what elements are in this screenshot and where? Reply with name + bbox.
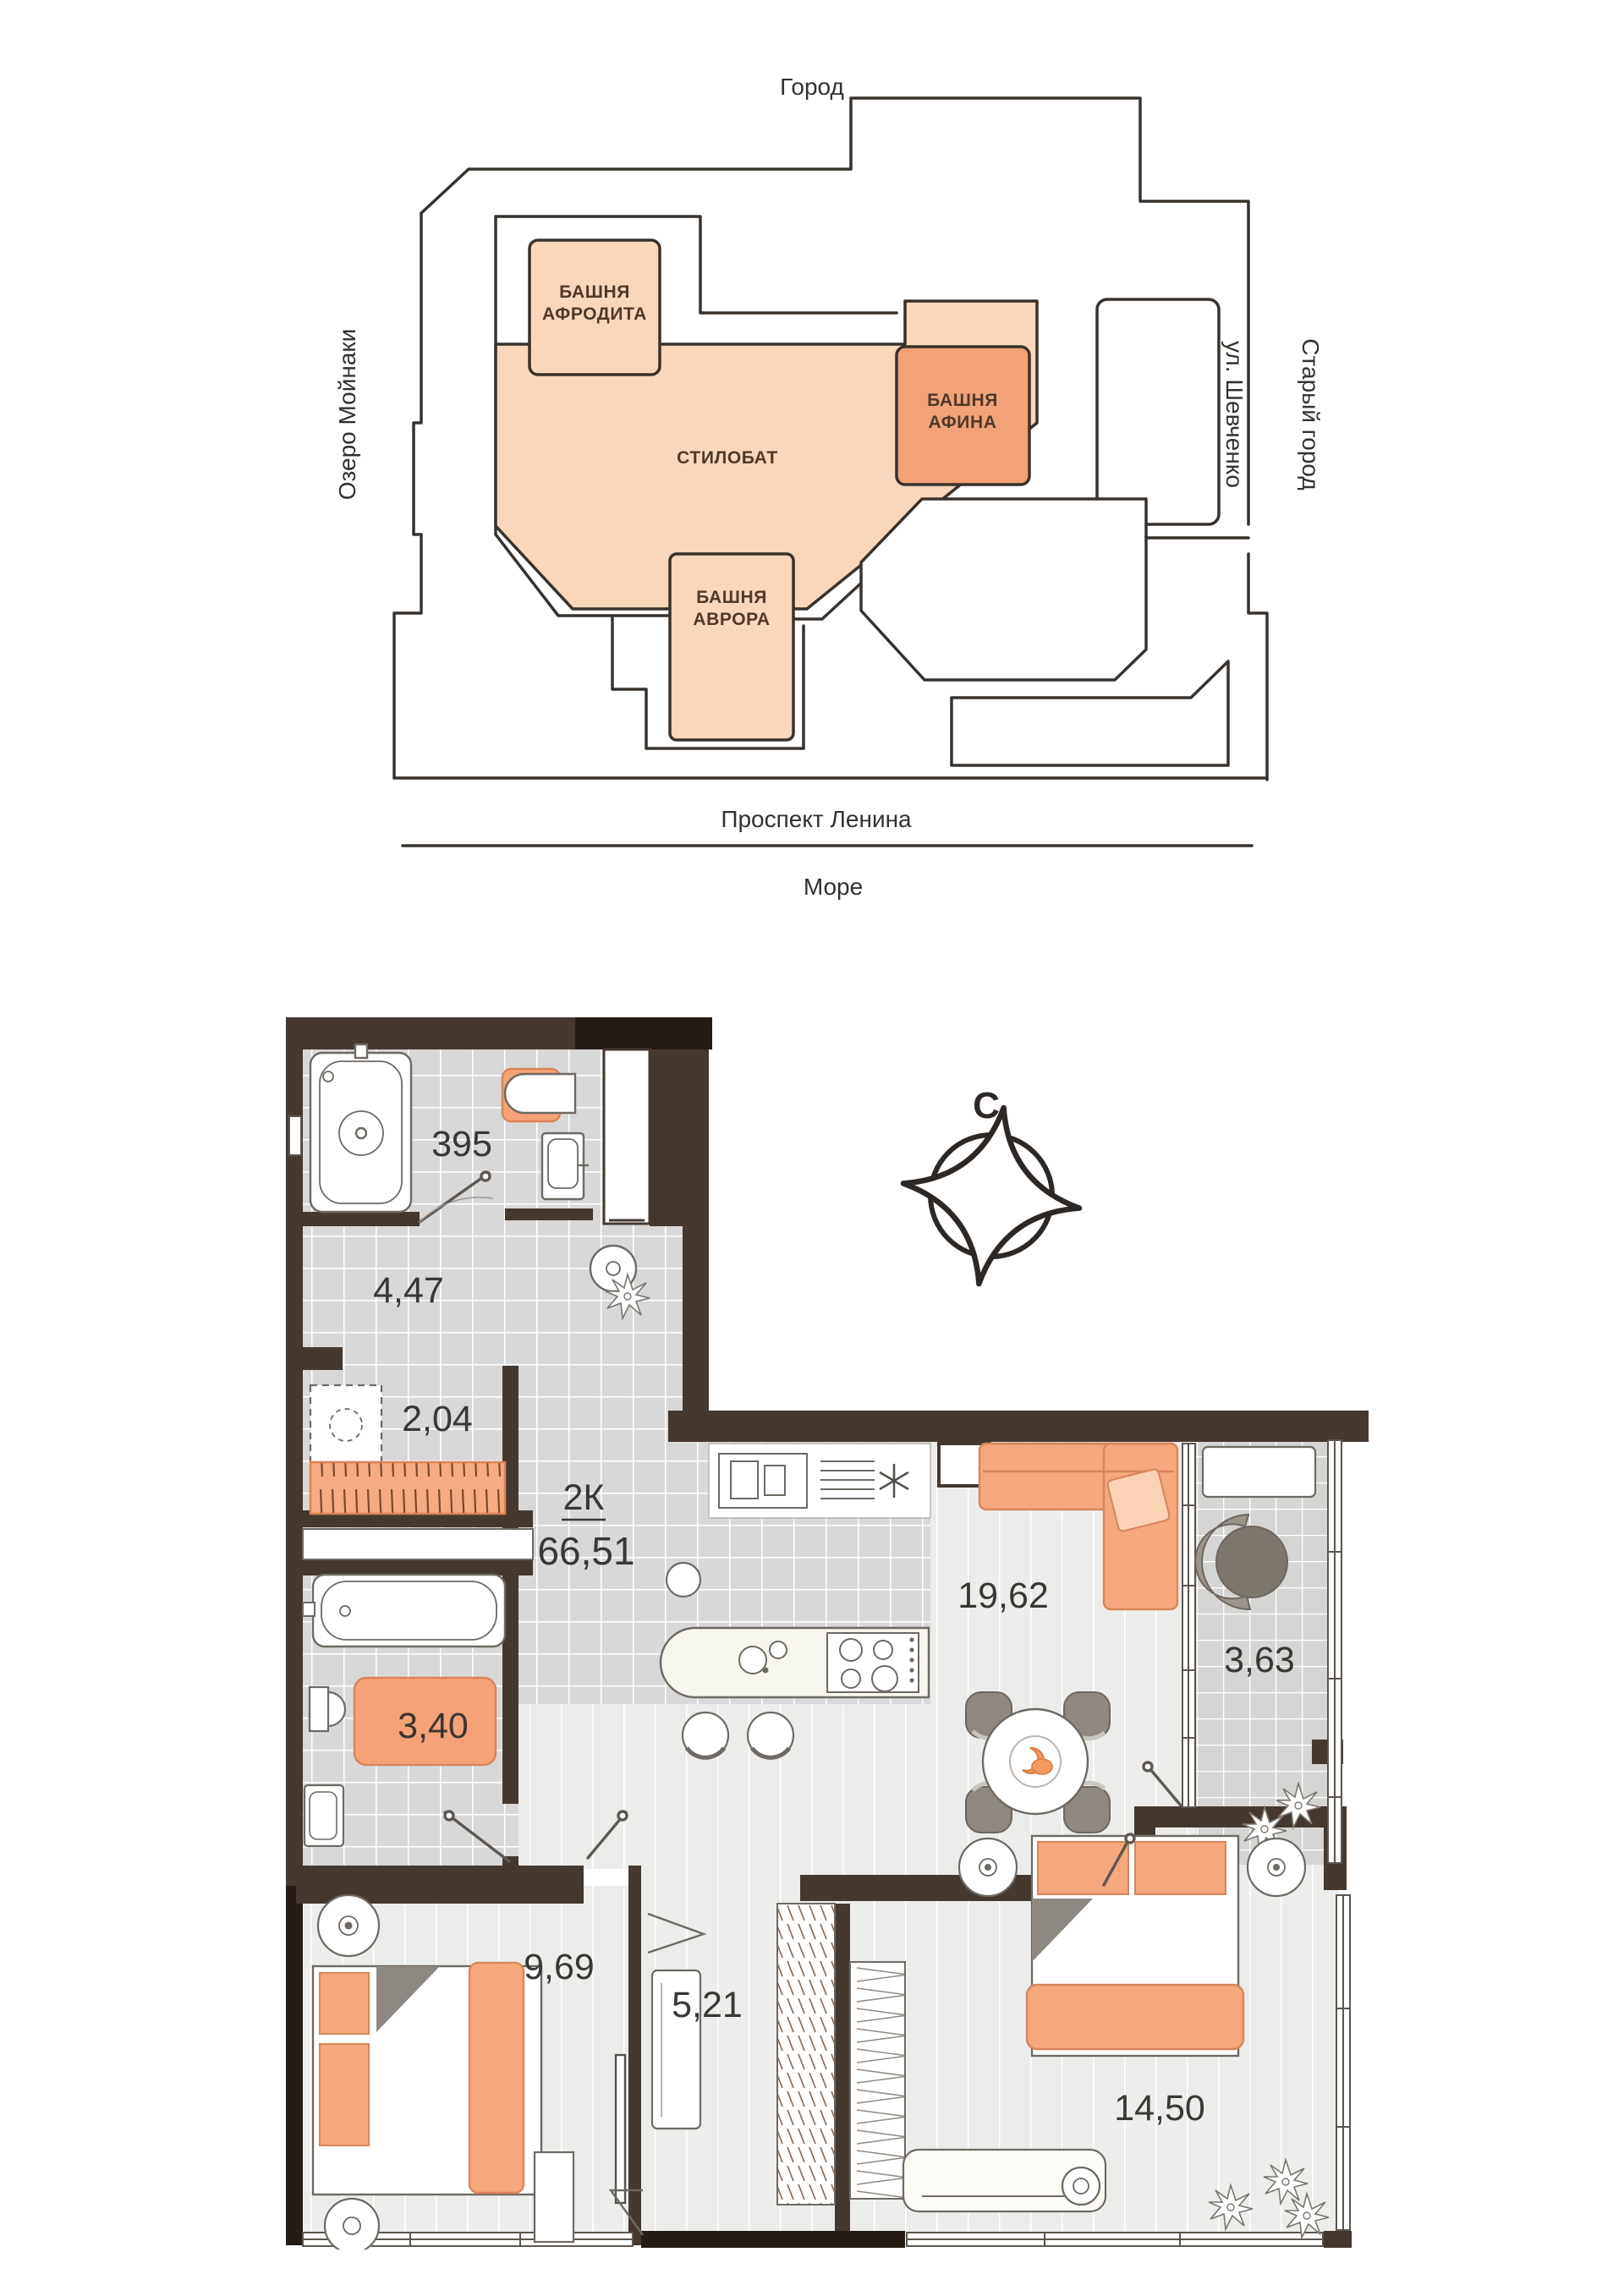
compass-north-label: С <box>973 1085 1000 1126</box>
site-plan: БАШНЯ АФРОДИТА БАШНЯ АФИНА СТИЛОБАТ БАШН… <box>330 68 1328 905</box>
tower-aurora-label-1: БАШНЯ <box>696 588 767 607</box>
old-town-label: Старый город <box>1298 338 1324 490</box>
wardrobe-2 <box>850 1962 905 2199</box>
tower-aphrodite-label-2: АФРОДИТА <box>542 304 647 324</box>
wardrobe-1 <box>777 1904 835 2205</box>
tower-athena-label-2: АФИНА <box>929 413 997 432</box>
street-shevchenko-label: ул. Шевченко <box>1221 341 1248 488</box>
closet-rail <box>310 1462 505 1514</box>
area-bedroom2: 14,50 <box>1114 2088 1205 2129</box>
stylobate-label: СТИЛОБАТ <box>677 448 778 468</box>
compass: С <box>903 1085 1079 1284</box>
tower-athena-label-1: БАШНЯ <box>927 391 998 410</box>
compass-star-icon <box>903 1108 1079 1284</box>
apartment-type-label: 2К <box>563 1477 605 1518</box>
toilet <box>505 1074 575 1113</box>
sea-label: Море <box>804 874 863 900</box>
bed-1 <box>313 1963 541 2195</box>
building-outline-east <box>1097 299 1219 524</box>
area-balcony: 3,63 <box>1224 1640 1295 1680</box>
double-bed <box>1027 1836 1243 2056</box>
page: БАШНЯ АФРОДИТА БАШНЯ АФИНА СТИЛОБАТ БАШН… <box>0 0 1624 2296</box>
dining-set <box>966 1692 1110 1833</box>
city-label: Город <box>780 74 844 100</box>
area-hallway: 4,47 <box>373 1270 444 1311</box>
tv-panel <box>616 2055 625 2203</box>
building-outline-south-1 <box>861 499 1146 680</box>
apartment-total-area: 66,51 <box>537 1529 634 1573</box>
area-bathroom2: 3,40 <box>398 1706 469 1746</box>
area-wardrobe: 2,04 <box>402 1399 473 1439</box>
floor-plan: 395 4,47 2,04 3,40 9,69 5,21 19,62 3,63 … <box>279 1011 1370 2249</box>
sink-2 <box>304 1785 343 1846</box>
avenue-lenina-label: Проспект Ленина <box>721 806 912 832</box>
area-hall: 5,21 <box>672 1985 743 2025</box>
area-living: 19,62 <box>957 1575 1049 1616</box>
tower-aurora-label-2: АВРОРА <box>693 610 770 629</box>
tower-aphrodite-label-1: БАШНЯ <box>559 282 630 302</box>
area-bathroom: 395 <box>431 1124 492 1164</box>
tower-aurora-shape <box>670 554 793 740</box>
lake-label: Озеро Мойнаки <box>334 329 360 501</box>
area-bedroom1: 9,69 <box>524 1947 595 1987</box>
